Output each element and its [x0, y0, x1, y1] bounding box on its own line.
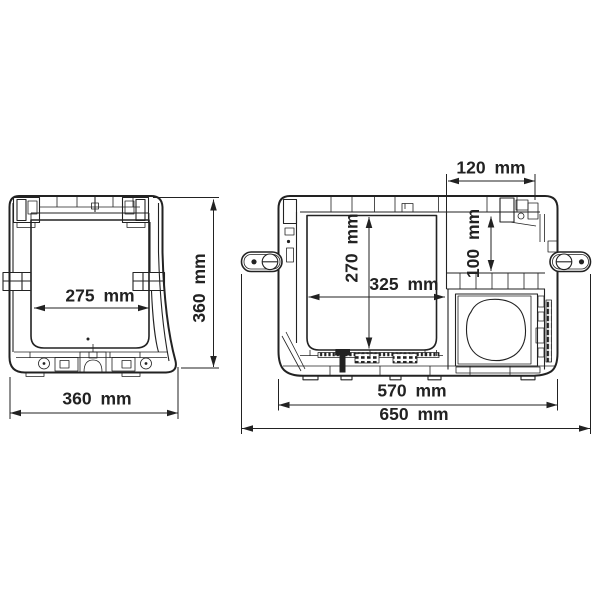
- dimension-label: 120 mm: [456, 158, 525, 178]
- front-view-hinge-top-left: [284, 200, 297, 344]
- dim-side-overall-depth: 360 mm: [10, 367, 178, 419]
- dimension-label: 360 mm: [62, 389, 131, 409]
- handle-left: [242, 252, 283, 272]
- dimension-label: 100 mm: [463, 209, 483, 278]
- dimension-label: 360 mm: [189, 253, 209, 322]
- side-view-interior: [31, 220, 149, 348]
- dimension-label: 650 mm: [379, 404, 448, 424]
- handle-pin-icon: [251, 259, 256, 264]
- compressor-blob: [467, 299, 526, 360]
- dim-side-interior-width: 275 mm: [34, 286, 149, 309]
- dimension-label: 270 mm: [342, 213, 362, 282]
- dim-front-interior-height: 270 mm: [342, 213, 370, 348]
- front-view-latch-top-right: [500, 198, 557, 252]
- terminal-blocks: [536, 296, 552, 362]
- dimension-label: 570 mm: [377, 381, 446, 401]
- handle-pin-icon: [579, 259, 584, 264]
- dim-front-compressor-top-width: 120 mm: [447, 158, 536, 213]
- dimension-label: 325 mm: [369, 274, 438, 294]
- side-view-lid: [31, 196, 149, 220]
- dim-front-step-height: 100 mm: [463, 209, 491, 278]
- handle-right: [550, 252, 591, 272]
- side-view-rail-left: [3, 273, 31, 291]
- drain-plug: [335, 349, 350, 373]
- cooler-dimension-diagram: 275 mm 360 mm 360 mm: [0, 0, 600, 600]
- dimension-label: 275 mm: [65, 286, 134, 306]
- front-view: 120 mm 100 mm 270 mm 325 mm 570 mm 650 m…: [242, 158, 591, 435]
- condenser-hatch: [458, 296, 531, 364]
- dim-front-interior-width: 325 mm: [309, 274, 446, 297]
- extension-lines: [447, 174, 536, 212]
- compartment-vent-strip: [456, 367, 540, 373]
- technical-drawing: 275 mm 360 mm 360 mm: [0, 0, 600, 600]
- side-view-base-details: [14, 338, 168, 377]
- side-view: 275 mm 360 mm 360 mm: [3, 196, 219, 419]
- side-view-wall-lines: [13, 203, 169, 361]
